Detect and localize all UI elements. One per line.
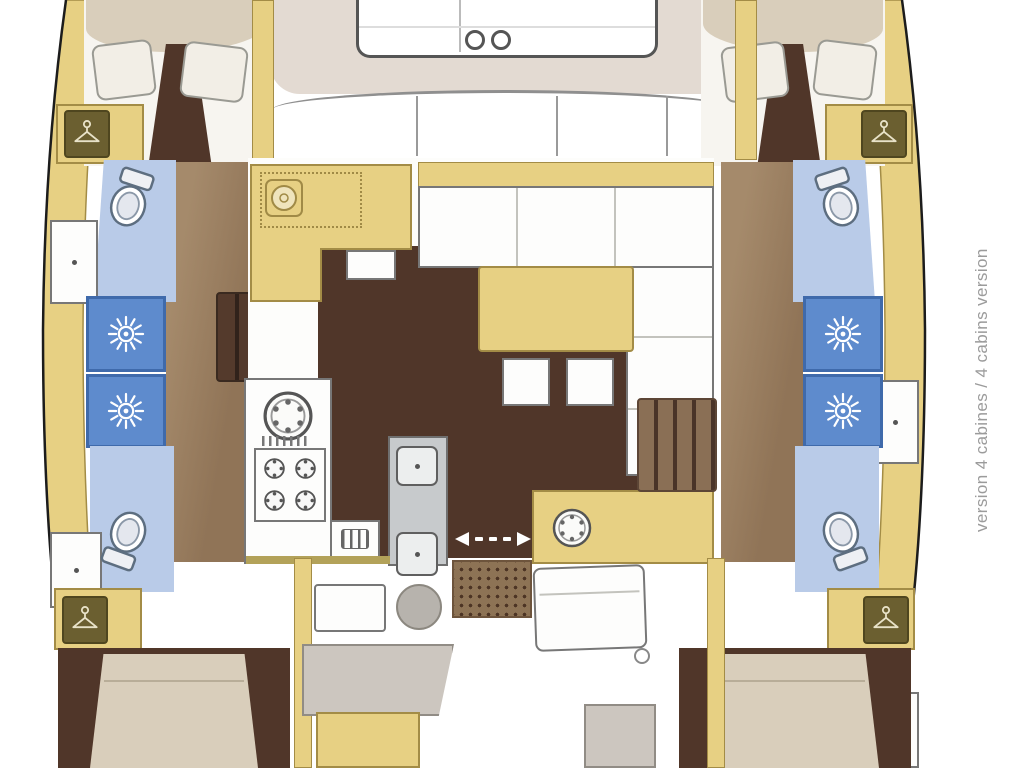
sofa-seam: [628, 336, 712, 338]
bench-seam: [359, 26, 655, 28]
window-mullion: [416, 96, 418, 156]
starboard-shower-forward: [803, 296, 883, 372]
sun-icon: [104, 389, 148, 433]
aft-cockpit-counter: [532, 490, 714, 564]
handle-ring: [634, 648, 650, 664]
burner-icon: [261, 487, 288, 514]
bed-sheet-line: [725, 680, 865, 682]
doormat-grid: [452, 560, 532, 618]
drainer-rack: [262, 436, 310, 446]
door-dash: [489, 537, 497, 541]
starboard-aft-wardrobe: [827, 588, 915, 650]
starboard-inner-bulkhead: [735, 0, 757, 160]
starboard-forward-wardrobe: [825, 104, 913, 164]
round-table-icon: [396, 584, 442, 630]
round-sink-icon: [550, 506, 594, 550]
stool: [566, 358, 614, 406]
starboard-cockpit-bench: [584, 704, 656, 768]
icebox: [330, 520, 380, 560]
port-bow-pillow: [179, 40, 249, 103]
wardrobe-icon-box: [64, 110, 110, 158]
port-forward-vanity: [50, 220, 98, 304]
window-mullion: [556, 96, 558, 156]
forward-cockpit-bench: [356, 0, 658, 58]
double-sink-icon: [396, 532, 438, 576]
starboard-walkway: [721, 162, 803, 562]
salon-aft-wall: [246, 556, 390, 564]
starboard-shower-aft: [803, 374, 883, 448]
port-inner-bulkhead: [252, 0, 274, 160]
sun-icon: [821, 389, 865, 433]
starboard-cockpit-seat: [533, 564, 648, 652]
version-annotation: version 4 cabines / 4 cabins version: [972, 180, 1004, 600]
burner-icon: [292, 455, 319, 482]
icebox-icon: [341, 529, 369, 549]
wardrobe-icon-box: [863, 596, 909, 644]
port-bow-pillow: [91, 39, 157, 102]
sofa-seam: [516, 188, 518, 266]
cup-holder-icon: [465, 30, 485, 50]
hanging-locker-icon: [69, 116, 105, 152]
wardrobe-icon-box: [861, 110, 907, 158]
port-aft-wardrobe: [54, 588, 142, 650]
salon-table: [478, 266, 634, 352]
stove: [254, 448, 326, 522]
sink-unit: [388, 436, 448, 566]
port-cockpit-bench-cushion: [316, 712, 420, 768]
bed-sheet-line: [104, 680, 244, 682]
sliding-door: [440, 528, 546, 550]
chart-table-return: [250, 248, 322, 302]
chart-instrument-icon: [262, 176, 306, 220]
hanging-locker-icon: [866, 116, 902, 152]
salon-sofa-top: [418, 186, 714, 268]
starboard-companionway-steps: [637, 398, 717, 492]
port-shower-aft: [86, 374, 166, 448]
stool: [502, 358, 550, 406]
cockpit-table: [314, 584, 386, 632]
hanging-locker-icon: [868, 602, 904, 638]
burner-icon: [261, 455, 288, 482]
burner-icon: [292, 487, 319, 514]
sofa-seam: [614, 188, 616, 266]
port-aft-bed: [90, 654, 258, 768]
cup-holder-icon: [491, 30, 511, 50]
hanging-locker-icon: [67, 602, 103, 638]
sun-icon: [104, 312, 148, 356]
door-dash: [475, 537, 483, 541]
seat-seam: [539, 590, 639, 595]
port-shower-forward: [86, 296, 166, 372]
starboard-cockpit-frame: [707, 558, 725, 768]
port-forward-wardrobe: [56, 104, 144, 164]
door-dash: [503, 537, 511, 541]
port-cockpit-bench-back: [302, 644, 454, 716]
sun-icon: [821, 312, 865, 356]
sofa-back-shelf: [418, 162, 714, 188]
double-sink-icon: [396, 446, 438, 486]
double-arrow-icon: [517, 532, 531, 546]
wardrobe-icon-box: [62, 596, 108, 644]
chart-seat: [346, 250, 396, 280]
floor-plan-canvas: version 4 cabines / 4 cabins version: [0, 0, 1024, 768]
windshield-band: [272, 90, 738, 160]
window-mullion: [666, 96, 668, 156]
double-arrow-icon: [455, 532, 469, 546]
starboard-aft-bed: [711, 654, 879, 768]
starboard-bow-pillow: [812, 39, 878, 102]
